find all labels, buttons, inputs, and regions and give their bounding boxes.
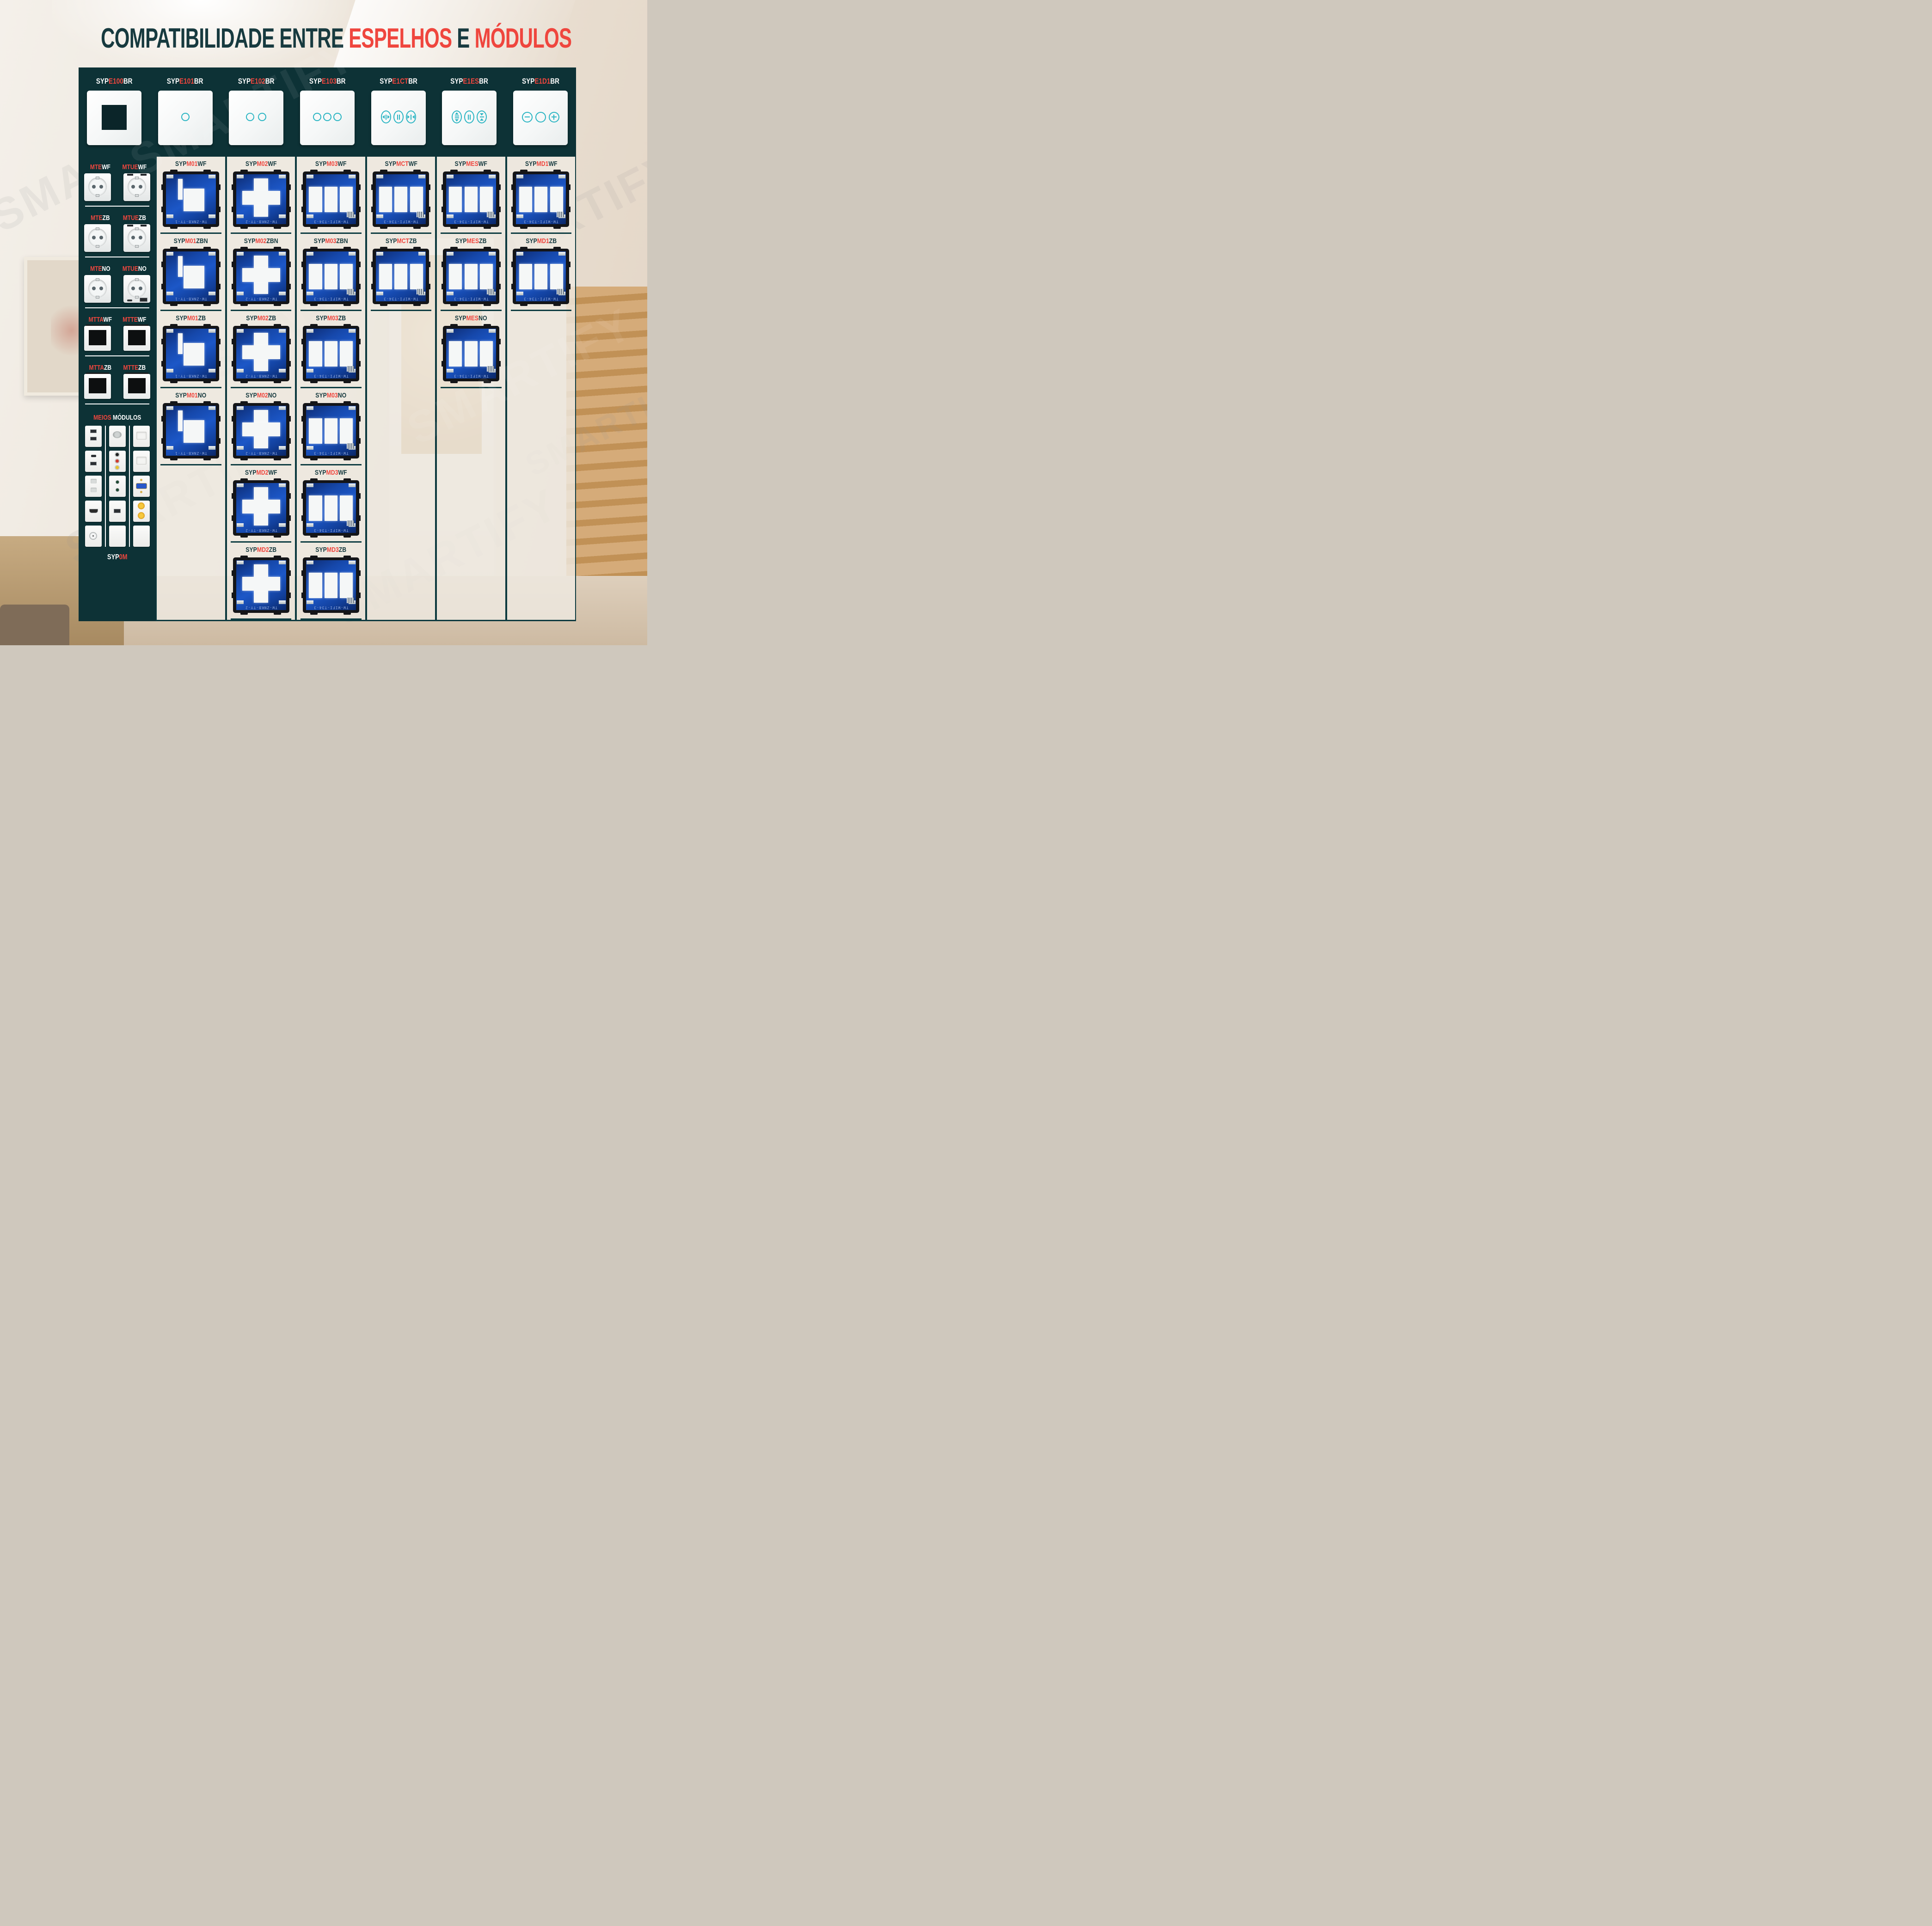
rca-triple-module-tile: [109, 451, 126, 472]
module-photo-sypmctwf: TW-WIFI-T34-3: [373, 171, 429, 228]
module-board: TW-ZNKB-TY-1: [166, 251, 216, 301]
group-separator: [511, 232, 571, 234]
thermostat-plate-photo: [123, 374, 150, 399]
grid-separator: [129, 426, 130, 547]
group-separator: [231, 387, 291, 388]
vga-module-tile: [133, 476, 150, 497]
module-board: TW-WIFI-T34-3: [516, 251, 566, 301]
module-code: SYPM01ZBN: [163, 237, 219, 246]
module-board: TW-ZNKB-TY-1: [166, 329, 216, 379]
module-board: TW-WIFI-T34-3: [306, 560, 356, 610]
mirror-code: MTTAZB: [86, 364, 114, 372]
module-photo-sypmd1zb: TW-WIFI-T34-3: [513, 248, 569, 305]
schuko-socket-usb-c-photo: [123, 275, 150, 303]
pcb-text: TW-WIFI-T34-3: [376, 220, 426, 224]
module-group: SYPM03NO TW-WIFI-T34-3: [297, 391, 365, 465]
background-sofa: [0, 605, 69, 645]
sidebar-separator: [85, 404, 149, 404]
module-code: SYPM03WF: [303, 159, 359, 169]
module-group: SYPM01ZB TW-ZNKB-TY-1: [157, 314, 225, 388]
module-code: SYPM02WF: [233, 159, 289, 169]
pcb-text: TW-ZNKB-TY-1: [166, 297, 216, 301]
module-board: TW-WIFI-T34-3: [306, 251, 356, 301]
group-separator: [301, 310, 361, 311]
espelho-code: SYPE1ESBR: [451, 77, 489, 86]
module-code: SYPMD3WF: [303, 468, 359, 477]
sidebar-group-meios-modulos: MEIOSMÓDULOS SYP0M: [83, 409, 151, 562]
blank-module-tile: [109, 526, 126, 547]
group-separator: [231, 541, 291, 543]
module-code: SYPMCTZB: [373, 237, 429, 246]
thermostat-plate-photo: [84, 374, 111, 399]
thermostat-plate-photo: [123, 326, 150, 351]
qr-sticker: [347, 443, 354, 449]
mirror-code: MTENO: [86, 265, 114, 273]
module-board: TW-WIFI-T34-3: [446, 174, 496, 224]
group-separator: [231, 464, 291, 465]
module-photo-sypmeswf: TW-WIFI-T34-3: [443, 171, 499, 228]
espelho-code: SYPE100BR: [96, 77, 133, 86]
module-code: SYPM01NO: [163, 391, 219, 400]
module-photo-sypm03wf: TW-WIFI-T34-3: [303, 171, 359, 228]
module-photo-sypm02zb: TW-ZNKB-TY-2: [233, 325, 289, 382]
module-photo-sypmctzb: TW-WIFI-T34-3: [373, 248, 429, 305]
module-photo-sypm02zbn: TW-ZNKB-TY-2: [233, 248, 289, 305]
module-group: SYPM02ZB TW-ZNKB-TY-2: [227, 314, 295, 388]
dim-down-icon: [522, 112, 533, 122]
touch-button-icon: [323, 113, 331, 121]
module-photo-sypmd2wf: TW-ZNKB-TY-2: [233, 479, 289, 537]
group-separator: [301, 464, 361, 465]
pause-icon: [393, 110, 404, 123]
group-separator: [160, 232, 221, 234]
group-separator: [511, 310, 571, 311]
compat-column-sype101br: SYPM01WF TW-ZNKB-TY-1 SYPM01ZBN TW-ZNKB-…: [156, 157, 226, 621]
module-group: SYPMD2ZB TW-ZNKB-TY-2: [227, 545, 295, 620]
module-code: SYPM03NO: [303, 391, 359, 400]
module-group: SYPM01NO TW-ZNKB-TY-1: [157, 391, 225, 465]
pcb-text: TW-WIFI-T34-3: [306, 297, 356, 301]
module-code: SYPMD2ZB: [233, 545, 289, 555]
module-photo-sypmeszb: TW-WIFI-T34-3: [443, 248, 499, 305]
socket-2pin-module-tile: [85, 476, 102, 497]
meios-modulos-label: MEIOSMÓDULOS: [90, 414, 145, 422]
schuko-socket-usb-photo: [123, 224, 150, 252]
shutter-close-icon: [477, 110, 487, 123]
group-separator: [371, 310, 431, 311]
module-board: TW-WIFI-T34-3: [306, 174, 356, 224]
rca-double-gold-module-tile: [133, 501, 150, 522]
module-photo-sypm02no: TW-ZNKB-TY-2: [233, 402, 289, 459]
pcb-text: TW-WIFI-T34-3: [516, 220, 566, 224]
pcb-text: TW-WIFI-T34-3: [376, 297, 426, 301]
module-code: SYPMESZB: [443, 237, 499, 246]
module-group: SYPM02NO TW-ZNKB-TY-2: [227, 391, 295, 465]
shutter-open-icon: [452, 110, 462, 123]
module-code: SYPMD1ZB: [513, 237, 569, 246]
group-separator: [371, 232, 431, 234]
pcb-text: TW-ZNKB-TY-2: [236, 605, 286, 610]
f-connector-module-tile: [109, 426, 126, 447]
group-separator: [231, 310, 291, 311]
module-group: SYPMD1WF TW-WIFI-T34-3: [507, 159, 575, 234]
sidebar-separator: [85, 206, 149, 207]
module-cutout: [102, 105, 127, 130]
module-photo-sypm01zb: TW-ZNKB-TY-1: [163, 325, 219, 382]
module-board: TW-ZNKB-TY-2: [236, 483, 286, 533]
header-cell-sype1ctbr: SYPE1CTBR: [363, 67, 434, 157]
sidebar-group-zb-sockets: MTEZB MTUEZB: [83, 211, 151, 252]
module-group: SYPMD1ZB TW-WIFI-T34-3: [507, 237, 575, 311]
pause-icon: [464, 110, 474, 123]
pcb-text: TW-WIFI-T34-3: [446, 220, 496, 224]
qr-sticker: [417, 289, 424, 294]
schuko-socket-photo: [84, 173, 111, 201]
module-code: SYPM02ZBN: [233, 237, 289, 246]
module-code: SYPM03ZB: [303, 314, 359, 323]
dimmer-panel-photo: [513, 91, 568, 145]
module-group: SYPMCTZB TW-WIFI-T34-3: [367, 237, 435, 311]
module-code: SYPMD2WF: [233, 468, 289, 477]
module-group: SYPM03WF TW-WIFI-T34-3: [297, 159, 365, 234]
group-separator: [160, 464, 221, 465]
sidebar-separator: [85, 257, 149, 257]
module-board: TW-WIFI-T34-3: [376, 174, 426, 224]
schuko-socket-photo: [84, 224, 111, 252]
half-module-column: [85, 426, 102, 547]
thermostat-plate-photo: [84, 326, 111, 351]
pcb-text: TW-WIFI-T34-3: [446, 297, 496, 301]
module-photo-sypmd3zb: TW-WIFI-T34-3: [303, 556, 359, 614]
module-board: TW-ZNKB-TY-2: [236, 329, 286, 379]
module-group: SYPMESWF TW-WIFI-T34-3: [437, 159, 505, 234]
module-code: SYPM02NO: [233, 391, 289, 400]
pcb-text: TW-WIFI-T34-3: [306, 451, 356, 455]
module-code: SYPMD3ZB: [303, 545, 359, 555]
module-code: SYPMD1WF: [513, 159, 569, 169]
mirror-code: MTUENO: [121, 265, 148, 273]
half-module-column: [133, 426, 150, 547]
module-board: TW-ZNKB-TY-1: [166, 406, 216, 456]
qr-sticker: [347, 598, 354, 603]
pcb-text: TW-WIFI-T34-3: [306, 605, 356, 610]
module-code: SYPM03ZBN: [303, 237, 359, 246]
module-code: SYPMCTWF: [373, 159, 429, 169]
group-separator: [231, 618, 291, 620]
compat-column-sype103br: SYPM03WF TW-WIFI-T34-3 SYPM03ZBN TW-WIFI…: [296, 157, 366, 621]
pcb-text: TW-WIFI-T34-3: [306, 528, 356, 532]
module-board: TW-WIFI-T34-3: [306, 329, 356, 379]
module-photo-sypm01no: TW-ZNKB-TY-1: [163, 402, 219, 459]
module-group: SYPM02ZBN TW-ZNKB-TY-2: [227, 237, 295, 311]
group-separator: [301, 618, 361, 620]
pcb-text: TW-ZNKB-TY-2: [236, 297, 286, 301]
sypom-label: SYP0M: [90, 553, 145, 562]
espelho-code: SYPE1CTBR: [380, 77, 417, 86]
group-separator: [231, 232, 291, 234]
group-separator: [301, 387, 361, 388]
pcb-text: TW-ZNKB-TY-1: [166, 220, 216, 224]
header-cell-sype1d1br: SYPE1D1BR: [505, 67, 576, 157]
module-photo-sypm01wf: TW-ZNKB-TY-1: [163, 171, 219, 228]
module-group: SYPM03ZB TW-WIFI-T34-3: [297, 314, 365, 388]
sidebar-mirror-types: MTEWF MTUEWF MTEZB MTUEZB: [79, 157, 156, 621]
group-separator: [301, 541, 361, 543]
module-group: SYPMD3ZB TW-WIFI-T34-3: [297, 545, 365, 620]
pcb-text: TW-ZNKB-TY-2: [236, 220, 286, 224]
keystone-module-tile: [133, 451, 150, 472]
pcb-text: TW-WIFI-T34-3: [306, 374, 356, 378]
qr-sticker: [487, 289, 494, 294]
sidebar-group-thermostat-zb: MTTAZB MTTEZB: [83, 361, 151, 399]
module-photo-sypmd2zb: TW-ZNKB-TY-2: [233, 556, 289, 614]
usb-single-module-tile: [109, 501, 126, 522]
keystone-module-tile: [133, 426, 150, 447]
module-photo-sypm03zb: TW-WIFI-T34-3: [303, 325, 359, 382]
module-code: SYPM01ZB: [163, 314, 219, 323]
module-group: SYPMESZB TW-WIFI-T34-3: [437, 237, 505, 311]
module-code: SYPM02ZB: [233, 314, 289, 323]
half-modules-grid: [83, 426, 151, 547]
module-board: TW-ZNKB-TY-2: [236, 251, 286, 301]
mirror-code: MTTAWF: [86, 316, 114, 324]
module-group: SYPMCTWF TW-WIFI-T34-3: [367, 159, 435, 234]
module-code: SYPMESWF: [443, 159, 499, 169]
curtain-close-icon: [406, 110, 416, 123]
pcb-text: TW-ZNKB-TY-2: [236, 374, 286, 378]
qr-sticker: [347, 289, 354, 294]
compat-column-sype102br: SYPM02WF TW-ZNKB-TY-2 SYPM02ZBN TW-ZNKB-…: [226, 157, 296, 621]
module-photo-sypm03no: TW-WIFI-T34-3: [303, 402, 359, 459]
pcb-text: TW-ZNKB-TY-1: [166, 451, 216, 455]
hdmi-module-tile: [85, 501, 102, 522]
mirror-code: MTUEZB: [121, 214, 148, 222]
module-photo-sypm01zbn: TW-ZNKB-TY-1: [163, 248, 219, 305]
usb-c-a-module-tile: [85, 451, 102, 472]
qr-sticker: [557, 212, 564, 217]
sidebar-separator: [85, 355, 149, 356]
group-separator: [160, 387, 221, 388]
qr-sticker: [347, 366, 354, 372]
group-separator: [441, 232, 501, 234]
mirror-code: MTTEWF: [121, 316, 148, 324]
schuko-socket-photo: [84, 275, 111, 303]
module-board: TW-WIFI-T34-3: [376, 251, 426, 301]
module-board: TW-ZNKB-TY-1: [166, 174, 216, 224]
module-photo-sypm03zbn: TW-WIFI-T34-3: [303, 248, 359, 305]
pcb-text: TW-WIFI-T34-3: [306, 220, 356, 224]
module-group: SYPM01ZBN TW-ZNKB-TY-1: [157, 237, 225, 311]
group-separator: [441, 310, 501, 311]
touch-button-icon: [333, 113, 342, 121]
sidebar-group-no-sockets: MTENO MTUENO: [83, 262, 151, 303]
blank-module-tile: [133, 526, 150, 547]
curtain-open-icon: [381, 110, 391, 123]
curtain-panel-photo: [371, 91, 426, 145]
shutter-panel-photo: [442, 91, 497, 145]
mirror-code: MTEWF: [86, 163, 114, 171]
module-board: TW-WIFI-T34-3: [446, 251, 496, 301]
touch-button-icon: [313, 113, 321, 121]
module-photo-sypm02wf: TW-ZNKB-TY-2: [233, 171, 289, 228]
qr-sticker: [347, 212, 354, 217]
header-cell-sype1esbr: SYPE1ESBR: [434, 67, 505, 157]
dim-up-icon: [549, 112, 559, 122]
module-board: TW-ZNKB-TY-2: [236, 560, 286, 610]
sidebar-separator: [85, 307, 149, 308]
pcb-text: TW-ZNKB-TY-1: [166, 374, 216, 378]
module-code: SYPMESNO: [443, 314, 499, 323]
module-group: SYPMD2WF TW-ZNKB-TY-2: [227, 468, 295, 543]
pcb-text: TW-WIFI-T34-3: [516, 297, 566, 301]
mirror-code: MTTEZB: [121, 364, 148, 372]
module-board: TW-ZNKB-TY-2: [236, 174, 286, 224]
qr-sticker: [557, 289, 564, 294]
module-photo-sypmd3wf: TW-WIFI-T34-3: [303, 479, 359, 537]
module-group: SYPM03ZBN TW-WIFI-T34-3: [297, 237, 365, 311]
grid-separator: [105, 426, 106, 547]
group-separator: [301, 232, 361, 234]
pcb-text: TW-ZNKB-TY-2: [236, 451, 286, 455]
usb-double-module-tile: [85, 426, 102, 447]
mirror-code: MTEZB: [86, 214, 114, 222]
tv-coax-module-tile: [85, 526, 102, 547]
module-group: SYPMD3WF TW-WIFI-T34-3: [297, 468, 365, 543]
module-photo-sypmd1wf: TW-WIFI-T34-3: [513, 171, 569, 228]
pcb-text: TW-ZNKB-TY-2: [236, 528, 286, 532]
espelho-code: SYPE1D1BR: [522, 77, 559, 86]
dim-toggle-icon: [535, 112, 546, 122]
group-separator: [160, 310, 221, 311]
half-module-column: [109, 426, 126, 547]
module-board: TW-WIFI-T34-3: [306, 483, 356, 533]
sidebar-group-thermostat-wf: MTTAWF MTTEWF: [83, 313, 151, 351]
qr-sticker: [417, 212, 424, 217]
module-board: TW-ZNKB-TY-2: [236, 406, 286, 456]
infographic-page: SMARTIFY SMARTIFY SMARTIFY SMARTIFY SMAR…: [0, 0, 647, 645]
qr-sticker: [487, 212, 494, 217]
minijack-double-module-tile: [109, 476, 126, 497]
compat-column-sype1ctbr: SYPMCTWF TW-WIFI-T34-3 SYPMCTZB TW-WIFI-…: [366, 157, 436, 621]
module-group: SYPM02WF TW-ZNKB-TY-2: [227, 159, 295, 234]
module-board: TW-WIFI-T34-3: [516, 174, 566, 224]
module-board: TW-WIFI-T34-3: [306, 406, 356, 456]
qr-sticker: [347, 520, 354, 526]
espelho-code: SYPE101BR: [167, 77, 203, 86]
